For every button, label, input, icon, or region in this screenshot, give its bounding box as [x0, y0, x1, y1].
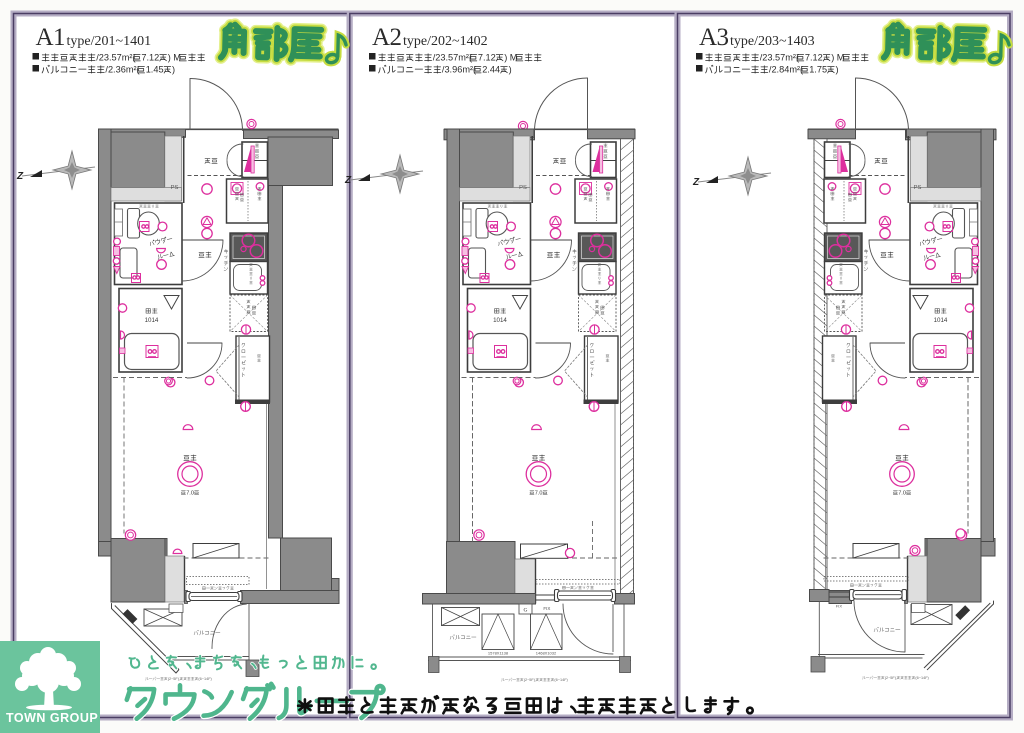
svg-text:): ) [836, 65, 839, 75]
svg-text:type/201~1401: type/201~1401 [67, 34, 152, 49]
svg-text:7.12: 7.12 [478, 53, 496, 63]
svg-text:(2~5F),: (2~5F), [168, 677, 180, 681]
svg-text:Z: Z [344, 175, 352, 186]
svg-text:A: A [36, 24, 54, 51]
svg-text:(2~5F),: (2~5F), [524, 678, 536, 682]
svg-text:FIX: FIX [543, 606, 550, 611]
svg-text:3: 3 [717, 24, 730, 51]
svg-text:/3.96m²(: /3.96m²( [442, 65, 476, 75]
svg-text:1014: 1014 [493, 317, 507, 324]
svg-text:(6~14F): (6~14F) [554, 678, 568, 682]
svg-text:G: G [524, 608, 528, 614]
svg-text:1.75: 1.75 [809, 65, 827, 75]
svg-text:type/203~1403: type/203~1403 [730, 34, 815, 49]
svg-text:2: 2 [390, 24, 403, 51]
svg-text:PS: PS [914, 185, 922, 191]
svg-text:(6~14F): (6~14F) [198, 677, 212, 681]
svg-text:A: A [372, 24, 390, 51]
svg-text:Z: Z [16, 171, 24, 182]
svg-text:/23.57m²(: /23.57m²( [96, 53, 135, 63]
svg-text:1.45: 1.45 [146, 65, 164, 75]
svg-text:/23.57m²(: /23.57m²( [433, 53, 472, 63]
svg-text:2.44: 2.44 [482, 65, 500, 75]
svg-text:(6~14F): (6~14F) [915, 676, 929, 680]
svg-text:(2~5F),: (2~5F), [885, 676, 897, 680]
svg-text:/2.36m²(: /2.36m²( [105, 65, 139, 75]
svg-text:/23.57m²(: /23.57m²( [760, 53, 799, 63]
svg-text:7.0: 7.0 [535, 491, 543, 497]
svg-text:7.12: 7.12 [141, 53, 159, 63]
svg-text:PS: PS [171, 185, 179, 191]
svg-text:type/202~1402: type/202~1402 [403, 34, 488, 49]
svg-text:7.0: 7.0 [898, 491, 906, 497]
svg-text:PS: PS [519, 185, 527, 191]
svg-text:): ) [509, 65, 512, 75]
svg-text:/2.84m²(: /2.84m²( [769, 65, 803, 75]
svg-text:): ) [172, 65, 175, 75]
svg-text:1014: 1014 [934, 317, 948, 324]
svg-text:1578X1138: 1578X1138 [488, 651, 509, 656]
svg-text:1: 1 [53, 24, 66, 51]
svg-text:1014: 1014 [145, 317, 159, 324]
svg-text:Z: Z [692, 177, 700, 188]
svg-text:1468X1032: 1468X1032 [536, 651, 557, 656]
svg-text:FIX: FIX [836, 604, 843, 609]
svg-text:A: A [699, 24, 717, 51]
svg-text:7.12: 7.12 [805, 53, 823, 63]
svg-text:7.0: 7.0 [186, 491, 194, 497]
svg-text:TOWN GROUP: TOWN GROUP [6, 711, 98, 725]
